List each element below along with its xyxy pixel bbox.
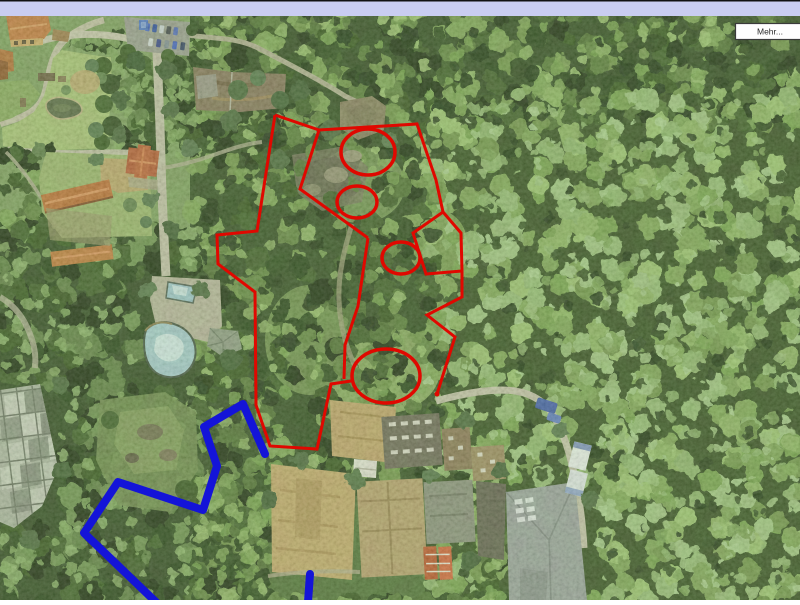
svg-text:Mehr...: Mehr... bbox=[757, 27, 783, 37]
